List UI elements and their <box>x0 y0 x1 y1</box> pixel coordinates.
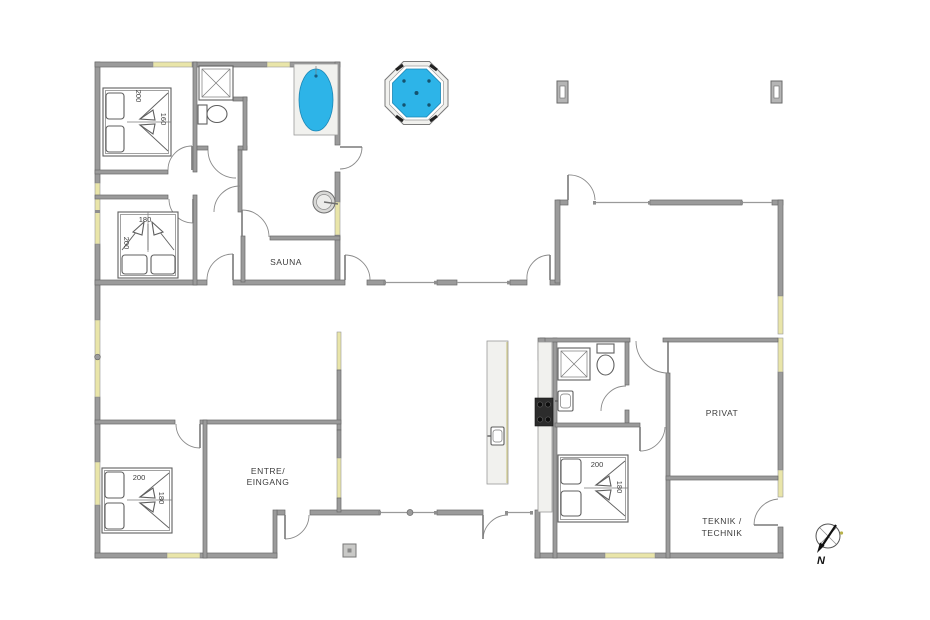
bed-dim: 180 <box>139 215 152 224</box>
bed-dim: 200 <box>591 460 604 469</box>
bed-dim: 180 <box>615 481 624 494</box>
pillar <box>771 81 782 103</box>
bed-dim: 200 <box>134 90 143 103</box>
floor-plan: SAUNA ENTRE/ EINGANG PRIVAT TEKNIK / TEC… <box>0 0 930 620</box>
interior-walls <box>95 62 778 558</box>
hot-tub-icon <box>385 62 448 125</box>
shower-icon <box>199 66 233 100</box>
shower-icon <box>558 348 590 380</box>
sink-icon <box>555 391 573 411</box>
toilet-icon <box>198 105 227 124</box>
teknik-label-line1: TEKNIK / <box>702 516 742 526</box>
cooktop-icon <box>535 398 553 426</box>
entre-label-line1: ENTRE/ <box>251 466 285 476</box>
sauna-label: SAUNA <box>270 257 302 267</box>
terrace-post <box>343 544 356 557</box>
windows <box>95 62 783 558</box>
teknik-label-line2: TECHNIK <box>702 528 743 538</box>
kitchen-island <box>487 341 508 484</box>
compass-icon: N <box>816 524 843 567</box>
bed-dim: 200 <box>133 473 146 482</box>
pillar <box>557 81 568 103</box>
bed-dim: 200 <box>122 237 131 250</box>
bathtub-icon <box>294 64 338 135</box>
toilet-icon <box>597 344 614 375</box>
entre-label-line2: EINGANG <box>247 477 290 487</box>
kitchen-counter <box>538 342 552 512</box>
exterior-walls <box>95 62 783 558</box>
bed-dim: 180 <box>157 492 166 505</box>
privat-label: PRIVAT <box>706 408 738 418</box>
round-basin-icon <box>313 191 338 213</box>
bed-dim: 160 <box>159 113 168 126</box>
compass-north-label: N <box>817 555 826 567</box>
